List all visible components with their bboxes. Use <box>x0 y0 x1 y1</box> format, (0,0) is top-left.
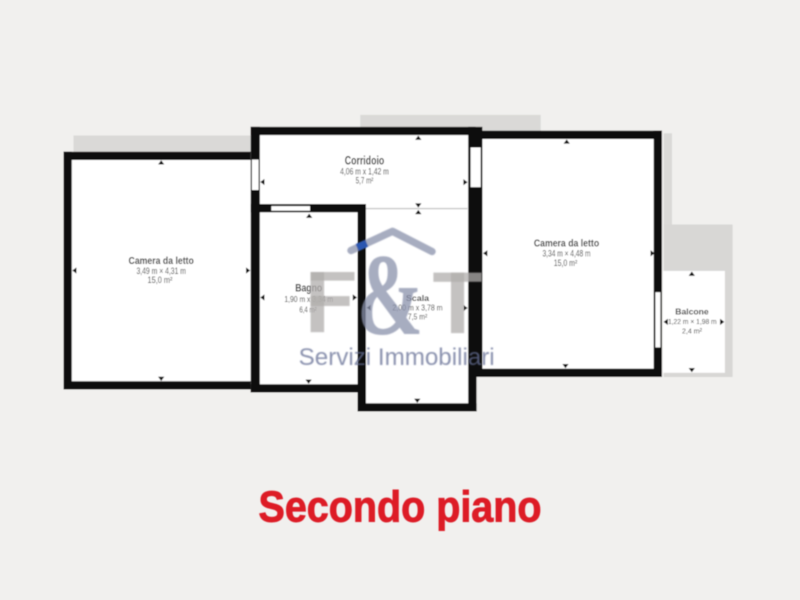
svg-text:3,34 m × 4,48 m: 3,34 m × 4,48 m <box>543 248 591 258</box>
svg-text:Servizi Immobiliari: Servizi Immobiliari <box>299 344 495 371</box>
svg-text:15,0 m²: 15,0 m² <box>148 275 173 285</box>
svg-text:Secondo piano: Secondo piano <box>259 484 542 532</box>
svg-text:Balcone: Balcone <box>675 307 709 316</box>
svg-text:5,7 m²: 5,7 m² <box>356 175 374 185</box>
svg-text:1,22 m × 1,98 m: 1,22 m × 1,98 m <box>668 317 717 326</box>
svg-text:&: & <box>357 230 423 360</box>
svg-text:2,4 m²: 2,4 m² <box>682 326 702 335</box>
svg-text:15,0 m²: 15,0 m² <box>554 258 578 268</box>
